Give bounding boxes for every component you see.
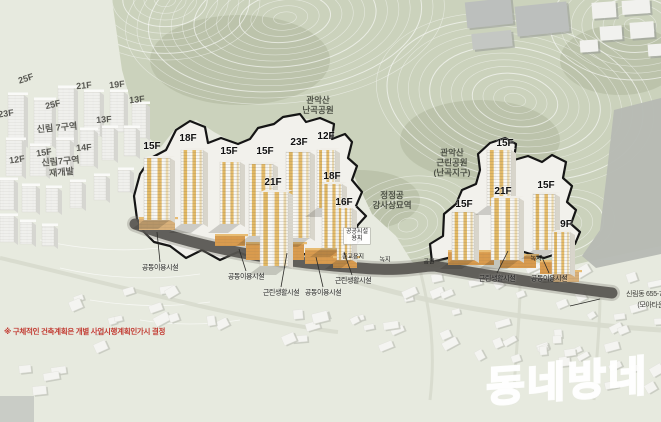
floor-label: 15F bbox=[220, 147, 237, 157]
area-label: 관악산 난곡공원 bbox=[302, 95, 333, 115]
background-floor-label: 19F bbox=[109, 80, 125, 91]
area-label: 정정공 강사상묘역 bbox=[372, 190, 411, 210]
site-address: 신림동 655-78 (모아타운) bbox=[592, 290, 661, 311]
facility-label: 공동이용시설 bbox=[228, 274, 264, 281]
background-floor-label: 13F bbox=[129, 95, 145, 106]
land-use-label: 녹지 bbox=[379, 258, 390, 265]
floor-label: 21F bbox=[494, 187, 511, 197]
watermark: 동네방네 bbox=[486, 342, 648, 414]
background-floor-label: 12F bbox=[9, 154, 26, 165]
floor-label: 16F bbox=[335, 198, 352, 208]
facility-label: 공동이용시설 bbox=[305, 290, 341, 297]
area-label: 신림7구역 재개발 bbox=[41, 155, 81, 180]
background-floor-label: 13F bbox=[96, 115, 112, 125]
site-address-line2: (모아타운) bbox=[592, 301, 661, 312]
background-floor-label: 25F bbox=[17, 72, 35, 85]
floor-label: 15F bbox=[455, 200, 472, 210]
floor-label: 23F bbox=[290, 138, 307, 148]
facility-label: 근린생활시설 bbox=[335, 278, 371, 285]
area-label: 신림 7구역 bbox=[36, 121, 77, 135]
floor-label: 15F bbox=[496, 139, 513, 149]
background-floor-label: 14F bbox=[76, 143, 92, 153]
disclaimer-note: ※ 구체적인 건축계획은 개별 사업시행계획인가시 결정 bbox=[4, 326, 165, 337]
background-floor-label: 21F bbox=[76, 81, 92, 92]
floor-label: 15F bbox=[256, 147, 273, 157]
land-use-label: 공공시설 용지 bbox=[344, 228, 370, 244]
facility-label: 근린생활시설 bbox=[263, 290, 299, 297]
floor-label: 12F bbox=[317, 132, 334, 142]
land-use-label: 종교용지 bbox=[342, 255, 364, 262]
planning-render-root: 15F18F15F15F23F12F21F18F16F15F21F15F15F9… bbox=[0, 0, 661, 422]
facility-label: 공동이용시설 bbox=[531, 276, 567, 283]
facility-label: 근린생활시설 bbox=[479, 276, 515, 283]
floor-label: 15F bbox=[537, 181, 554, 191]
floor-label: 18F bbox=[323, 172, 340, 182]
area-label: 관악산 근린공원 (난곡지구) bbox=[434, 148, 471, 179]
floor-label: 15F bbox=[143, 142, 160, 152]
land-use-label: 녹지 bbox=[530, 257, 541, 264]
site-address-line1: 신림동 655-78 bbox=[592, 290, 661, 301]
floor-label: 9F bbox=[560, 220, 572, 230]
background-floor-label: 15F bbox=[36, 147, 53, 158]
facility-label: 공동이용시설 bbox=[142, 265, 178, 272]
floor-label: 18F bbox=[179, 134, 196, 144]
floor-label: 21F bbox=[264, 178, 281, 188]
land-use-label: 공원 bbox=[423, 260, 434, 267]
background-floor-label: 25F bbox=[44, 99, 61, 111]
background-floor-label: 23F bbox=[0, 108, 14, 119]
